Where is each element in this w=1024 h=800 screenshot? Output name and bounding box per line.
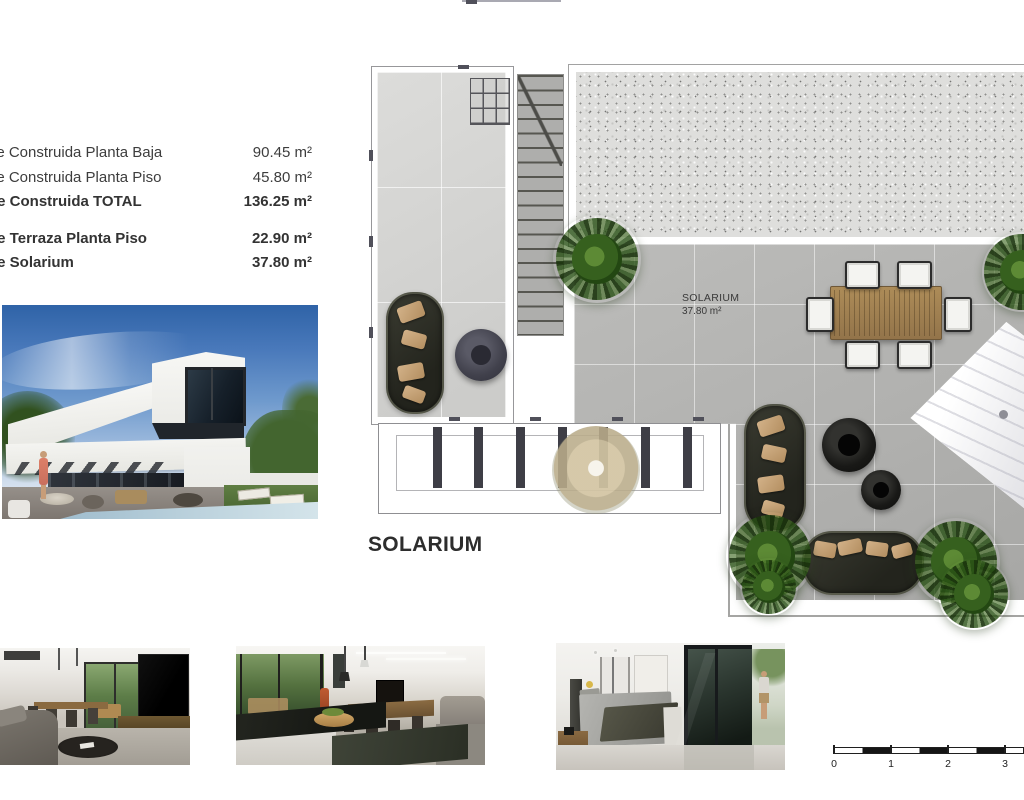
row-value: 45.80 m²	[253, 166, 312, 191]
row-label: ie Terraza Planta Piso	[0, 227, 147, 252]
row-value: 37.80 m²	[252, 251, 312, 276]
row-value: 90.45 m²	[253, 141, 312, 166]
villa-upper-window	[185, 367, 246, 426]
scale-bar-segments	[833, 747, 1024, 754]
plan-plant	[938, 558, 1010, 630]
scale-label: 1	[888, 758, 894, 770]
k-sofa	[440, 696, 485, 724]
dimension-tick	[449, 417, 460, 421]
plan-plant	[553, 215, 641, 303]
pillow	[761, 444, 788, 464]
plan-dining-chair	[897, 341, 932, 369]
plan-dining-chair	[897, 261, 932, 289]
room-label-area: 37.80 m²	[682, 305, 739, 318]
plan-stair-railing	[470, 78, 510, 125]
dimension-tick	[369, 150, 373, 161]
pillow	[396, 300, 426, 324]
plan-dining-chair	[944, 297, 972, 332]
plan-pergola-slat	[474, 427, 483, 488]
lr-chair	[66, 710, 77, 727]
dimension-tick	[530, 417, 541, 421]
villa-window-mullion	[211, 368, 213, 420]
villa-side-cylinder	[8, 500, 30, 518]
plan-pergola-slat	[683, 427, 692, 488]
plan-dining-chair	[806, 297, 834, 332]
plan-coffee-table-large	[822, 418, 876, 472]
dimension-tick	[458, 65, 469, 69]
b-lamp	[586, 681, 593, 688]
villa-pouf	[82, 495, 104, 509]
dimension-tick	[693, 417, 704, 421]
pillow	[813, 540, 837, 559]
table-row: ie Solarium 37.80 m²	[0, 251, 312, 276]
b-glass-mullion	[715, 645, 718, 757]
k-ceiling-light	[356, 652, 446, 654]
plan-coffee-table-small	[861, 470, 901, 510]
b-spotlight	[594, 651, 597, 654]
brochure-page: ie Construida Planta Baja 90.45 m² ie Co…	[0, 0, 1024, 800]
plan-pergola-slat	[641, 427, 650, 488]
row-label: ie Construida Planta Baja	[0, 141, 162, 166]
plan-stair-break-line	[518, 76, 562, 166]
lr-pendant	[76, 648, 78, 666]
villa-person-legs	[41, 485, 46, 499]
table-row: ie Construida Planta Baja 90.45 m²	[0, 141, 312, 166]
scale-label: 3	[1002, 758, 1008, 770]
plan-sofa-horizontal	[802, 531, 924, 595]
plan-parasol-pole	[999, 410, 1008, 419]
plan-pergola-slat	[516, 427, 525, 488]
k-pendant	[364, 646, 366, 660]
lr-tv	[138, 654, 189, 718]
b-nightstand-items	[564, 727, 574, 735]
solarium-room-label: SOLARIUM 37.80 m²	[682, 292, 739, 318]
pillow	[837, 538, 863, 557]
plan-dining-chair	[845, 261, 880, 289]
plan-caption: SOLARIUM	[368, 533, 482, 557]
lr-chair	[88, 708, 98, 724]
dimension-tick	[369, 327, 373, 338]
top-edge-tick	[466, 0, 477, 4]
b-floor-shadow	[684, 745, 754, 770]
b-man-legs	[761, 703, 767, 719]
pillow	[756, 414, 786, 437]
plan-pergola-slat	[433, 427, 442, 488]
b-man-shirt	[759, 677, 769, 693]
k-pendant-shade	[339, 672, 350, 681]
pillow	[401, 385, 426, 405]
k-fruit	[322, 708, 344, 716]
photo-living-room	[0, 648, 190, 765]
k-pendant	[344, 646, 346, 672]
scale-label: 2	[945, 758, 951, 770]
photo-bedroom	[556, 643, 785, 770]
room-label-title: SOLARIUM	[682, 292, 739, 305]
photo-villa-exterior	[2, 305, 318, 519]
dimension-tick	[369, 236, 373, 247]
plan-tree-canopy	[552, 426, 640, 514]
villa-dark-underside	[152, 423, 244, 439]
table-row: ie Construida Planta Piso 45.80 m²	[0, 166, 312, 191]
dimension-tick	[612, 417, 623, 421]
villa-person-head	[40, 451, 47, 458]
scale-tick	[1004, 745, 1006, 754]
villa-pouf	[173, 493, 203, 507]
scale-tick	[947, 745, 949, 754]
row-value: 22.90 m²	[252, 227, 312, 252]
plan-dining-chair	[845, 341, 880, 369]
scale-tick	[833, 745, 835, 754]
plan-lounger-terrace	[386, 292, 444, 414]
table-gap	[0, 215, 312, 227]
plan-solarium-edge-left	[728, 424, 730, 616]
villa-patio-chairs	[115, 490, 147, 504]
plan-dining-table	[830, 286, 942, 340]
table-row: ie Terraza Planta Piso 22.90 m²	[0, 227, 312, 252]
b-man-shorts	[759, 693, 769, 703]
k-pendant-shade	[360, 660, 369, 667]
pillow	[891, 542, 914, 560]
b-spotlight	[614, 649, 617, 652]
k-ceiling-light	[386, 658, 466, 660]
lr-ceiling-vent	[4, 651, 40, 660]
scale-bar: 0 1 2 3	[833, 744, 1024, 774]
row-value: 136.25 m²	[244, 190, 312, 215]
scale-tick	[890, 745, 892, 754]
plan-plant	[740, 558, 798, 616]
surface-table: ie Construida Planta Baja 90.45 m² ie Co…	[0, 141, 312, 276]
pillow	[865, 541, 889, 558]
lr-glass-mullion	[114, 662, 116, 730]
pillow	[397, 362, 425, 382]
villa-person-dress	[39, 458, 48, 485]
pillow	[757, 474, 785, 493]
row-label: ie Construida Planta Piso	[0, 166, 161, 191]
plan-gravel-roof	[576, 72, 1024, 237]
row-label: ie Solarium	[0, 251, 74, 276]
photo-kitchen	[236, 646, 485, 765]
table-row-total: ie Construida TOTAL 136.25 m²	[0, 190, 312, 215]
pillow	[400, 329, 427, 350]
plan-side-table-terrace	[455, 329, 507, 381]
lr-pendant	[58, 648, 60, 670]
row-label: ie Construida TOTAL	[0, 190, 142, 215]
plan-pergola-inner	[396, 435, 704, 491]
scale-label: 0	[831, 758, 837, 770]
